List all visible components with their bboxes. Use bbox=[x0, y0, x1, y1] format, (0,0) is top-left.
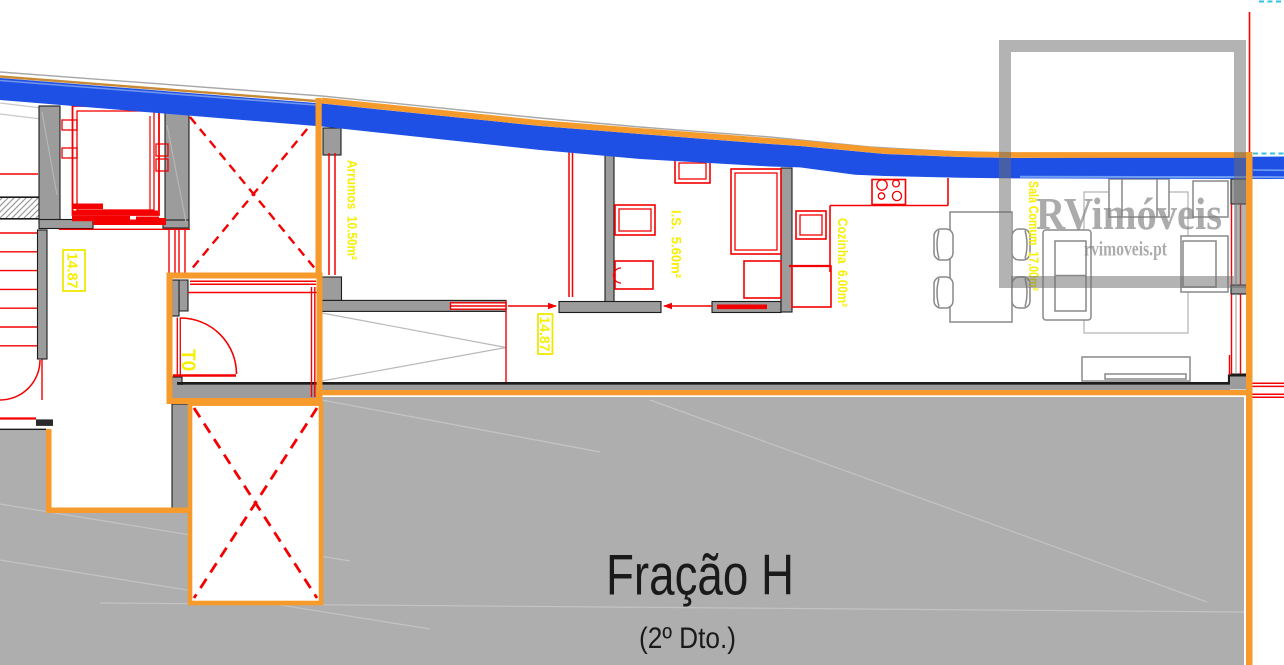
svg-text:14.87: 14.87 bbox=[64, 253, 81, 289]
svg-text:T0: T0 bbox=[177, 349, 198, 371]
svg-text:14.87: 14.87 bbox=[537, 317, 553, 352]
svg-text:I.S. 5.60m²: I.S. 5.60m² bbox=[669, 210, 684, 278]
svg-text:Arrumos 10.50m²: Arrumos 10.50m² bbox=[345, 160, 360, 260]
svg-text:Cozinha 6.00m²: Cozinha 6.00m² bbox=[835, 218, 850, 307]
svg-text:(2º Dto.): (2º Dto.) bbox=[639, 622, 736, 655]
svg-text:rvimoveis.pt: rvimoveis.pt bbox=[1084, 237, 1168, 261]
svg-text:Fração H: Fração H bbox=[606, 544, 794, 608]
svg-text:RVimóveis: RVimóveis bbox=[1036, 189, 1222, 239]
